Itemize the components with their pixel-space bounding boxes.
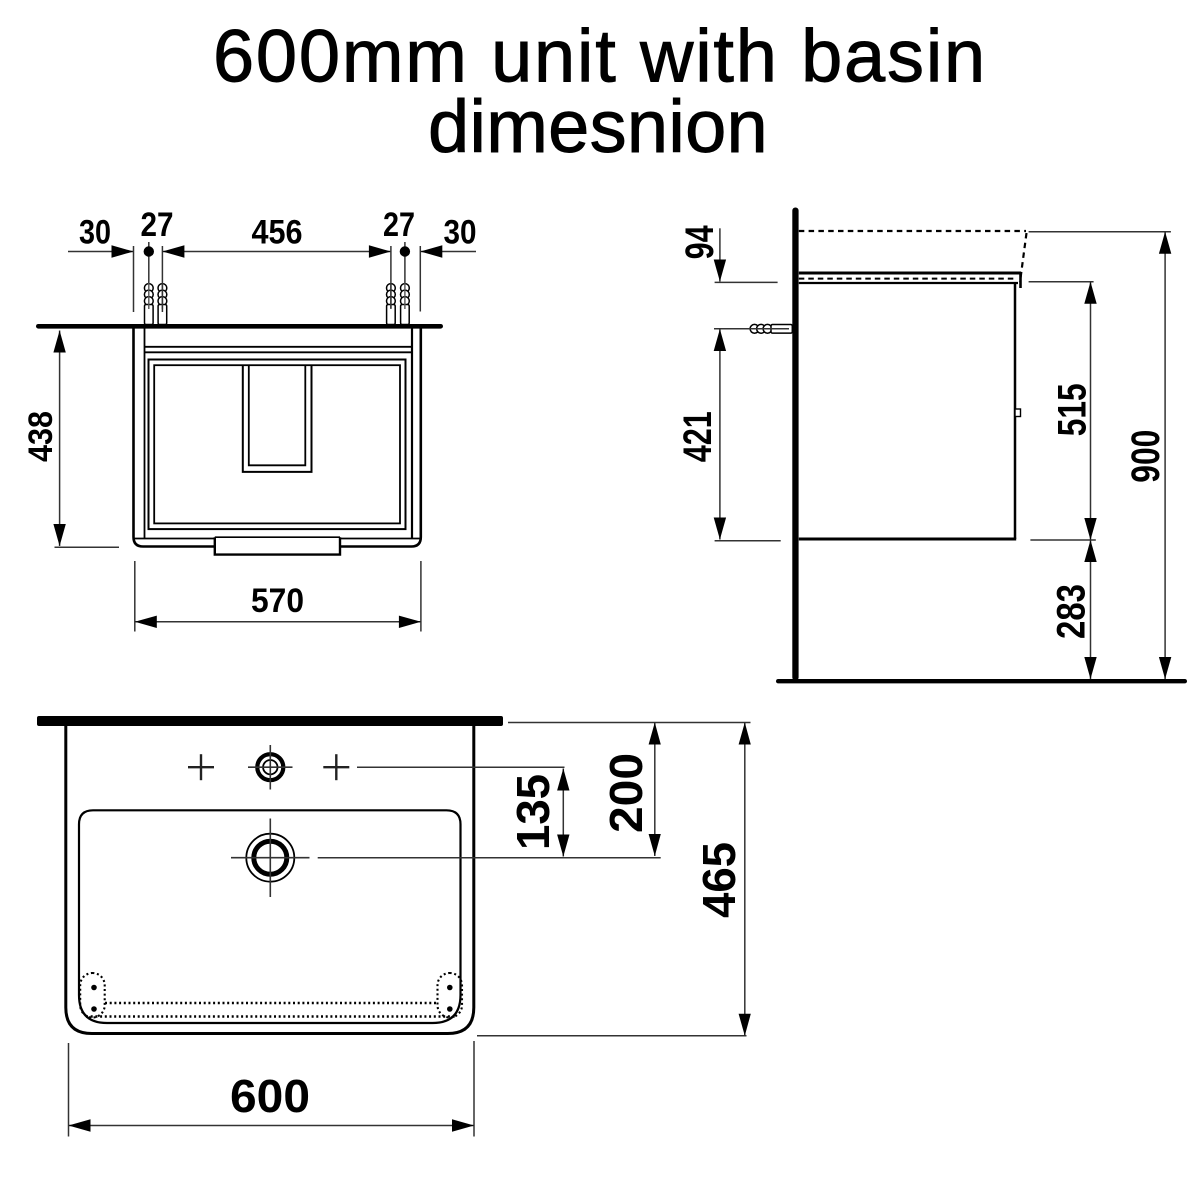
svg-text:570: 570 <box>251 582 304 620</box>
svg-text:94: 94 <box>678 225 722 260</box>
svg-text:30: 30 <box>79 214 111 252</box>
svg-text:dimesnion: dimesnion <box>428 85 768 168</box>
svg-text:27: 27 <box>383 206 415 244</box>
svg-text:30: 30 <box>444 214 477 252</box>
svg-text:135: 135 <box>507 774 559 850</box>
svg-text:200: 200 <box>600 753 652 833</box>
svg-text:283: 283 <box>1050 584 1094 639</box>
svg-text:27: 27 <box>141 206 174 244</box>
svg-text:456: 456 <box>252 214 303 252</box>
svg-text:600: 600 <box>230 1070 310 1122</box>
svg-text:515: 515 <box>1051 383 1095 436</box>
svg-text:465: 465 <box>693 842 745 918</box>
svg-text:900: 900 <box>1124 430 1168 483</box>
svg-text:438: 438 <box>22 411 60 462</box>
svg-text:421: 421 <box>676 411 720 462</box>
